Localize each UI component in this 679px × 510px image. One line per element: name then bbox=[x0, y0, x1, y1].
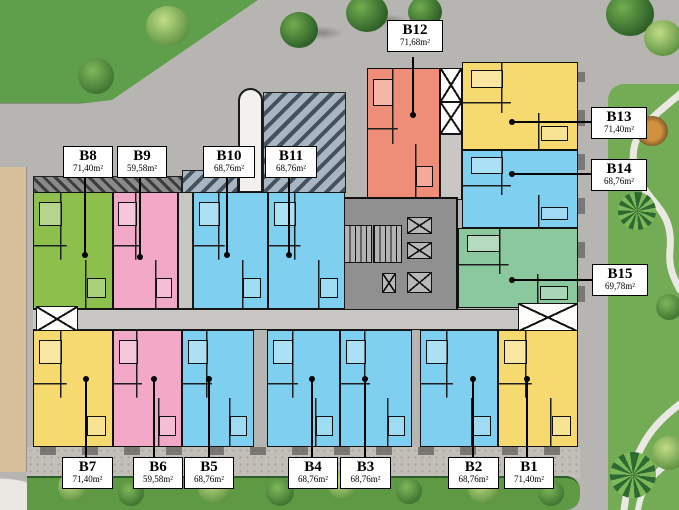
pedestrian-path-left bbox=[0, 167, 27, 472]
stairs-icon bbox=[343, 225, 372, 263]
tree-icon bbox=[346, 0, 388, 32]
unit-area: 68,76m² bbox=[267, 164, 315, 174]
leader-line-b10 bbox=[226, 177, 228, 255]
unit-name: B4 bbox=[290, 460, 336, 475]
label-b12[interactable]: B12 71,68m² bbox=[387, 20, 443, 52]
leader-line-b11 bbox=[288, 177, 290, 255]
leader-line-b2 bbox=[472, 379, 474, 457]
unit-name: B10 bbox=[205, 149, 253, 164]
label-b1[interactable]: B1 71,40m² bbox=[504, 457, 554, 489]
elevator-icon bbox=[382, 273, 396, 293]
entry-slot bbox=[178, 192, 193, 309]
bush-icon bbox=[656, 294, 679, 320]
unit-name: B1 bbox=[506, 460, 552, 475]
unit-b3[interactable] bbox=[340, 330, 412, 447]
unit-name: B12 bbox=[389, 23, 441, 38]
unit-area: 68,76m² bbox=[450, 475, 497, 485]
tree-icon bbox=[280, 12, 318, 48]
corridor bbox=[33, 309, 578, 330]
leader-line-b12 bbox=[412, 57, 414, 115]
unit-name: B3 bbox=[342, 460, 389, 475]
leader-line-b7 bbox=[85, 379, 87, 457]
leader-line-b4 bbox=[311, 379, 313, 457]
void-box bbox=[518, 303, 578, 332]
unit-b15[interactable] bbox=[458, 228, 578, 308]
palm-tree-icon bbox=[610, 452, 656, 498]
unit-b8[interactable] bbox=[33, 192, 113, 309]
awning-roof bbox=[33, 176, 182, 193]
label-b13[interactable]: B13 71,40m² bbox=[591, 107, 647, 139]
core-area bbox=[335, 197, 458, 314]
leader-line-b14 bbox=[512, 173, 591, 175]
unit-name: B15 bbox=[594, 267, 646, 282]
balcony-strip bbox=[578, 72, 585, 302]
label-b14[interactable]: B14 68,76m² bbox=[591, 159, 647, 191]
unit-area: 71,40m² bbox=[64, 475, 111, 485]
unit-name: B5 bbox=[186, 460, 232, 475]
lobby-slot bbox=[440, 134, 462, 200]
unit-area: 68,76m² bbox=[593, 177, 645, 187]
unit-area: 71,40m² bbox=[593, 125, 645, 135]
unit-area: 68,76m² bbox=[290, 475, 336, 485]
label-b11[interactable]: B11 68,76m² bbox=[265, 146, 317, 178]
unit-name: B11 bbox=[267, 149, 315, 164]
unit-b11[interactable] bbox=[268, 192, 345, 309]
unit-name: B13 bbox=[593, 110, 645, 125]
palm-tree-icon bbox=[618, 192, 656, 230]
unit-area: 68,76m² bbox=[186, 475, 232, 485]
plant-icon bbox=[78, 58, 114, 94]
leader-line-b8 bbox=[84, 177, 86, 255]
grass-area-top-left bbox=[0, 0, 258, 104]
leader-line-b13 bbox=[512, 121, 591, 123]
leader-line-b9 bbox=[139, 177, 141, 257]
label-b15[interactable]: B15 69,78m² bbox=[592, 264, 648, 296]
void-box bbox=[36, 306, 78, 332]
elevator-icon bbox=[407, 217, 432, 234]
leader-line-b3 bbox=[364, 379, 366, 457]
leader-line-b5 bbox=[208, 379, 210, 457]
unit-b7[interactable] bbox=[33, 330, 113, 447]
bush-icon bbox=[652, 436, 679, 470]
unit-name: B6 bbox=[135, 460, 181, 475]
unit-b10[interactable] bbox=[193, 192, 268, 309]
balcony-strip bbox=[40, 447, 570, 455]
unit-b14[interactable] bbox=[462, 150, 578, 228]
unit-b4[interactable] bbox=[267, 330, 340, 447]
label-b8[interactable]: B8 71,40m² bbox=[63, 146, 113, 178]
unit-area: 71,68m² bbox=[389, 38, 441, 48]
elevator-icon bbox=[407, 242, 432, 259]
label-b6[interactable]: B6 59,58m² bbox=[133, 457, 183, 489]
unit-b2[interactable] bbox=[420, 330, 498, 447]
unit-b12[interactable] bbox=[367, 68, 440, 200]
unit-area: 71,40m² bbox=[65, 164, 111, 174]
unit-name: B14 bbox=[593, 162, 645, 177]
unit-area: 69,78m² bbox=[594, 282, 646, 292]
tree-icon bbox=[146, 6, 190, 46]
leader-line-b15 bbox=[512, 279, 592, 281]
leader-line-b6 bbox=[153, 379, 155, 457]
label-b9[interactable]: B9 59,58m² bbox=[117, 146, 167, 178]
unit-b5[interactable] bbox=[182, 330, 254, 447]
unit-area: 71,40m² bbox=[506, 475, 552, 485]
stairs-icon bbox=[373, 225, 402, 263]
leader-line-b1 bbox=[526, 379, 528, 457]
unit-area: 68,76m² bbox=[342, 475, 389, 485]
unit-name: B2 bbox=[450, 460, 497, 475]
label-b4[interactable]: B4 68,76m² bbox=[288, 457, 338, 489]
label-b10[interactable]: B10 68,76m² bbox=[203, 146, 255, 178]
unit-b13[interactable] bbox=[462, 62, 578, 150]
unit-b9[interactable] bbox=[113, 192, 178, 309]
service-shaft bbox=[440, 68, 462, 102]
label-b5[interactable]: B5 68,76m² bbox=[184, 457, 234, 489]
unit-area: 59,58m² bbox=[119, 164, 165, 174]
park-area-right bbox=[608, 84, 679, 510]
unit-name: B7 bbox=[64, 460, 111, 475]
tree-icon bbox=[644, 20, 679, 56]
unit-name: B8 bbox=[65, 149, 111, 164]
unit-b1[interactable] bbox=[498, 330, 578, 447]
service-shaft bbox=[440, 102, 462, 134]
unit-name: B9 bbox=[119, 149, 165, 164]
label-b3[interactable]: B3 68,76m² bbox=[340, 457, 391, 489]
unit-b6[interactable] bbox=[113, 330, 182, 447]
bush-icon bbox=[396, 478, 422, 504]
label-b7[interactable]: B7 71,40m² bbox=[62, 457, 113, 489]
unit-area: 68,76m² bbox=[205, 164, 253, 174]
elevator-icon bbox=[407, 272, 432, 293]
unit-area: 59,58m² bbox=[135, 475, 181, 485]
label-b2[interactable]: B2 68,76m² bbox=[448, 457, 499, 489]
floor-plan-canvas: B8 71,40m² B9 59,58m² B10 68,76m² B11 68… bbox=[0, 0, 679, 510]
